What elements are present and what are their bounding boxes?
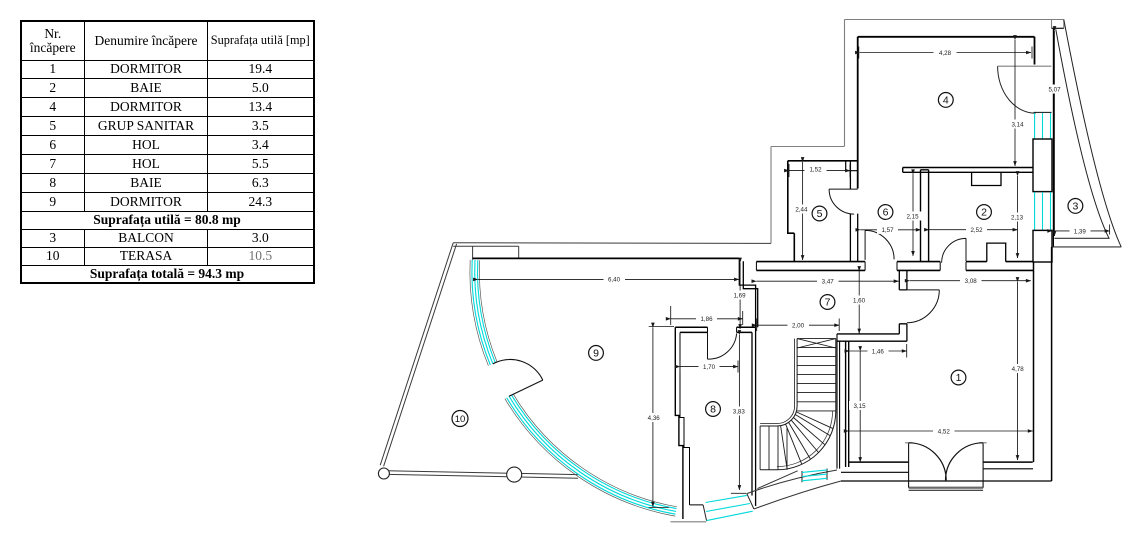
svg-text:1: 1 <box>956 372 962 384</box>
svg-text:5: 5 <box>817 208 823 220</box>
svg-text:1,39: 1,39 <box>1074 228 1087 235</box>
svg-text:1,60: 1,60 <box>853 298 866 305</box>
svg-text:2: 2 <box>981 207 987 219</box>
svg-text:1,86: 1,86 <box>700 316 713 323</box>
svg-text:3: 3 <box>1072 201 1078 213</box>
svg-text:4,28: 4,28 <box>939 50 952 57</box>
svg-text:3,08: 3,08 <box>965 278 978 285</box>
svg-text:5,07: 5,07 <box>1048 87 1061 94</box>
svg-text:3,15: 3,15 <box>853 403 866 410</box>
svg-text:7: 7 <box>825 297 831 309</box>
svg-text:9: 9 <box>593 348 599 360</box>
svg-text:4,78: 4,78 <box>1012 366 1025 373</box>
svg-text:2,00: 2,00 <box>792 323 805 330</box>
svg-text:8: 8 <box>710 404 716 416</box>
svg-text:4: 4 <box>943 95 949 107</box>
svg-text:3,47: 3,47 <box>822 279 835 286</box>
svg-text:6: 6 <box>883 207 889 219</box>
svg-text:1,69: 1,69 <box>733 293 746 300</box>
svg-text:1,46: 1,46 <box>872 348 885 355</box>
svg-text:3,83: 3,83 <box>733 409 746 416</box>
svg-text:1,52: 1,52 <box>809 167 822 174</box>
svg-text:2,15: 2,15 <box>906 214 919 221</box>
svg-text:3,14: 3,14 <box>1011 122 1024 129</box>
svg-text:1,70: 1,70 <box>703 364 716 371</box>
svg-text:2,13: 2,13 <box>1011 215 1024 222</box>
svg-text:2,44: 2,44 <box>795 207 808 214</box>
svg-text:1,57: 1,57 <box>881 227 894 234</box>
svg-text:10: 10 <box>455 414 466 425</box>
svg-text:2,52: 2,52 <box>970 227 983 234</box>
svg-text:6,40: 6,40 <box>608 277 621 284</box>
svg-text:4,52: 4,52 <box>938 428 951 435</box>
svg-text:4,36: 4,36 <box>648 415 661 422</box>
